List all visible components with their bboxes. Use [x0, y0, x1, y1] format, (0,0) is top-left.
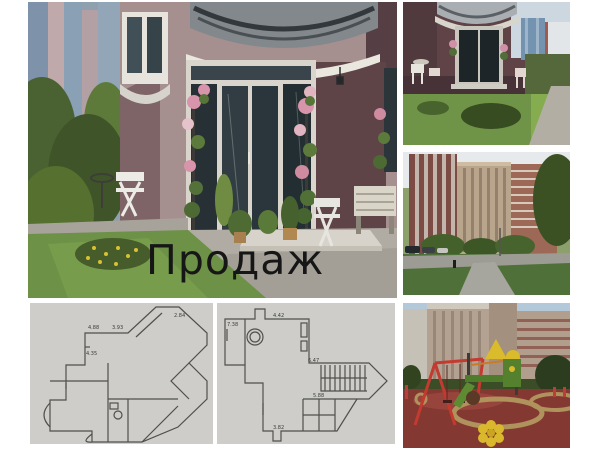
- svg-text:3.82: 3.82: [273, 425, 284, 431]
- svg-text:4.88: 4.88: [88, 325, 99, 331]
- entrance-door: [449, 26, 508, 89]
- side-window: [384, 68, 397, 172]
- entrance-lawn-photo: [403, 2, 570, 145]
- svg-text:7.38: 7.38: [227, 322, 238, 328]
- ground: [28, 218, 397, 298]
- main-entrance-illustration: [28, 2, 397, 298]
- distant-buildings: [521, 18, 570, 60]
- svg-text:3.93: 3.93: [112, 325, 123, 331]
- svg-text:4.42: 4.42: [273, 313, 284, 319]
- svg-text:2.84: 2.84: [174, 313, 185, 319]
- entrance-lawn-illustration: [403, 2, 570, 145]
- pedestrian: [453, 260, 456, 268]
- main-entrance-photo: Продаж: [28, 2, 397, 298]
- courtyard-illustration: [403, 152, 570, 295]
- svg-text:6.47: 6.47: [308, 358, 319, 364]
- real-estate-listing-collage: Продаж: [0, 0, 600, 450]
- svg-text:4.35: 4.35: [86, 351, 97, 357]
- floor-plan-left-drawing: 4.88 3.93 2.84 4.35: [30, 303, 213, 444]
- playground-photo: [403, 303, 570, 448]
- floor-plan-upper-level: 7.38 4.42 6.47 5.88 3.82: [217, 303, 395, 444]
- courtyard-buildings-photo: [403, 152, 570, 295]
- svg-text:5.88: 5.88: [313, 393, 324, 399]
- floor-plan-lower-level: 4.88 3.93 2.84 4.35: [30, 303, 213, 444]
- playground-illustration: [403, 303, 570, 448]
- plan-paper: [217, 303, 395, 444]
- floor-plan-right-drawing: 7.38 4.42 6.47 5.88 3.82: [217, 303, 395, 444]
